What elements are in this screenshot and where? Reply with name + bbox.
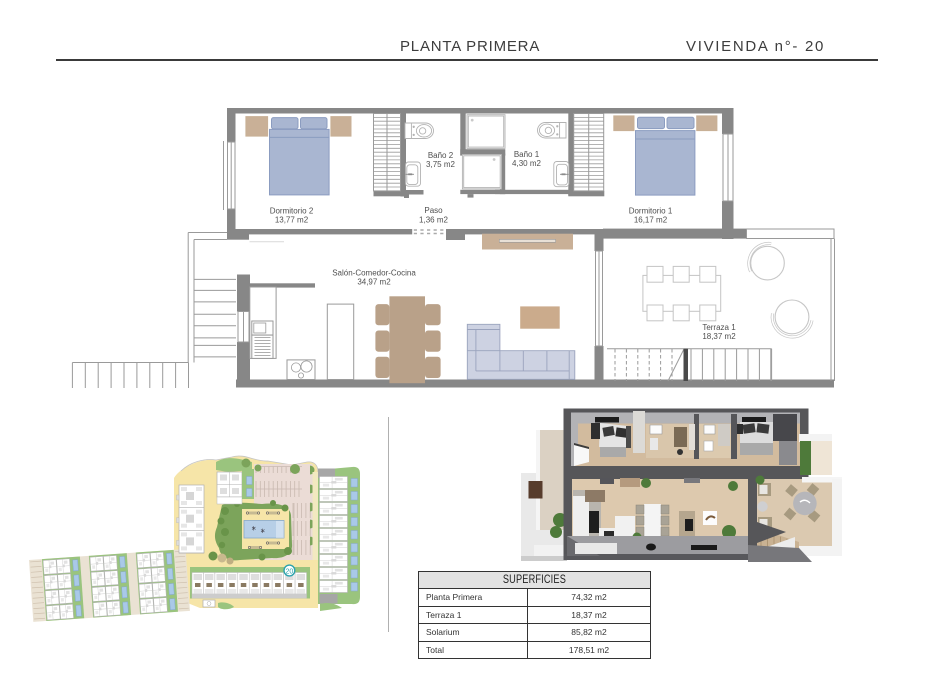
svg-text:1,36 m2: 1,36 m2 bbox=[419, 215, 448, 224]
svg-text:18,37 m2: 18,37 m2 bbox=[702, 332, 736, 341]
svg-text:Baño 2: Baño 2 bbox=[428, 151, 454, 160]
svg-text:34,97 m2: 34,97 m2 bbox=[357, 278, 391, 287]
svg-text:13,77 m2: 13,77 m2 bbox=[275, 216, 309, 225]
svg-text:Baño 1: Baño 1 bbox=[514, 150, 540, 159]
svg-text:3,75 m2: 3,75 m2 bbox=[426, 160, 455, 169]
svg-text:16,17 m2: 16,17 m2 bbox=[634, 216, 668, 225]
svg-text:Dormitorio 1: Dormitorio 1 bbox=[629, 207, 673, 216]
svg-text:Dormitorio 2: Dormitorio 2 bbox=[270, 207, 314, 216]
svg-text:Salón-Comedor-Cocina: Salón-Comedor-Cocina bbox=[332, 269, 416, 278]
svg-text:20: 20 bbox=[286, 568, 294, 575]
svg-text:4,30 m2: 4,30 m2 bbox=[512, 159, 541, 168]
svg-text:Paso: Paso bbox=[424, 206, 443, 215]
svg-text:Terraza 1: Terraza 1 bbox=[702, 323, 736, 332]
